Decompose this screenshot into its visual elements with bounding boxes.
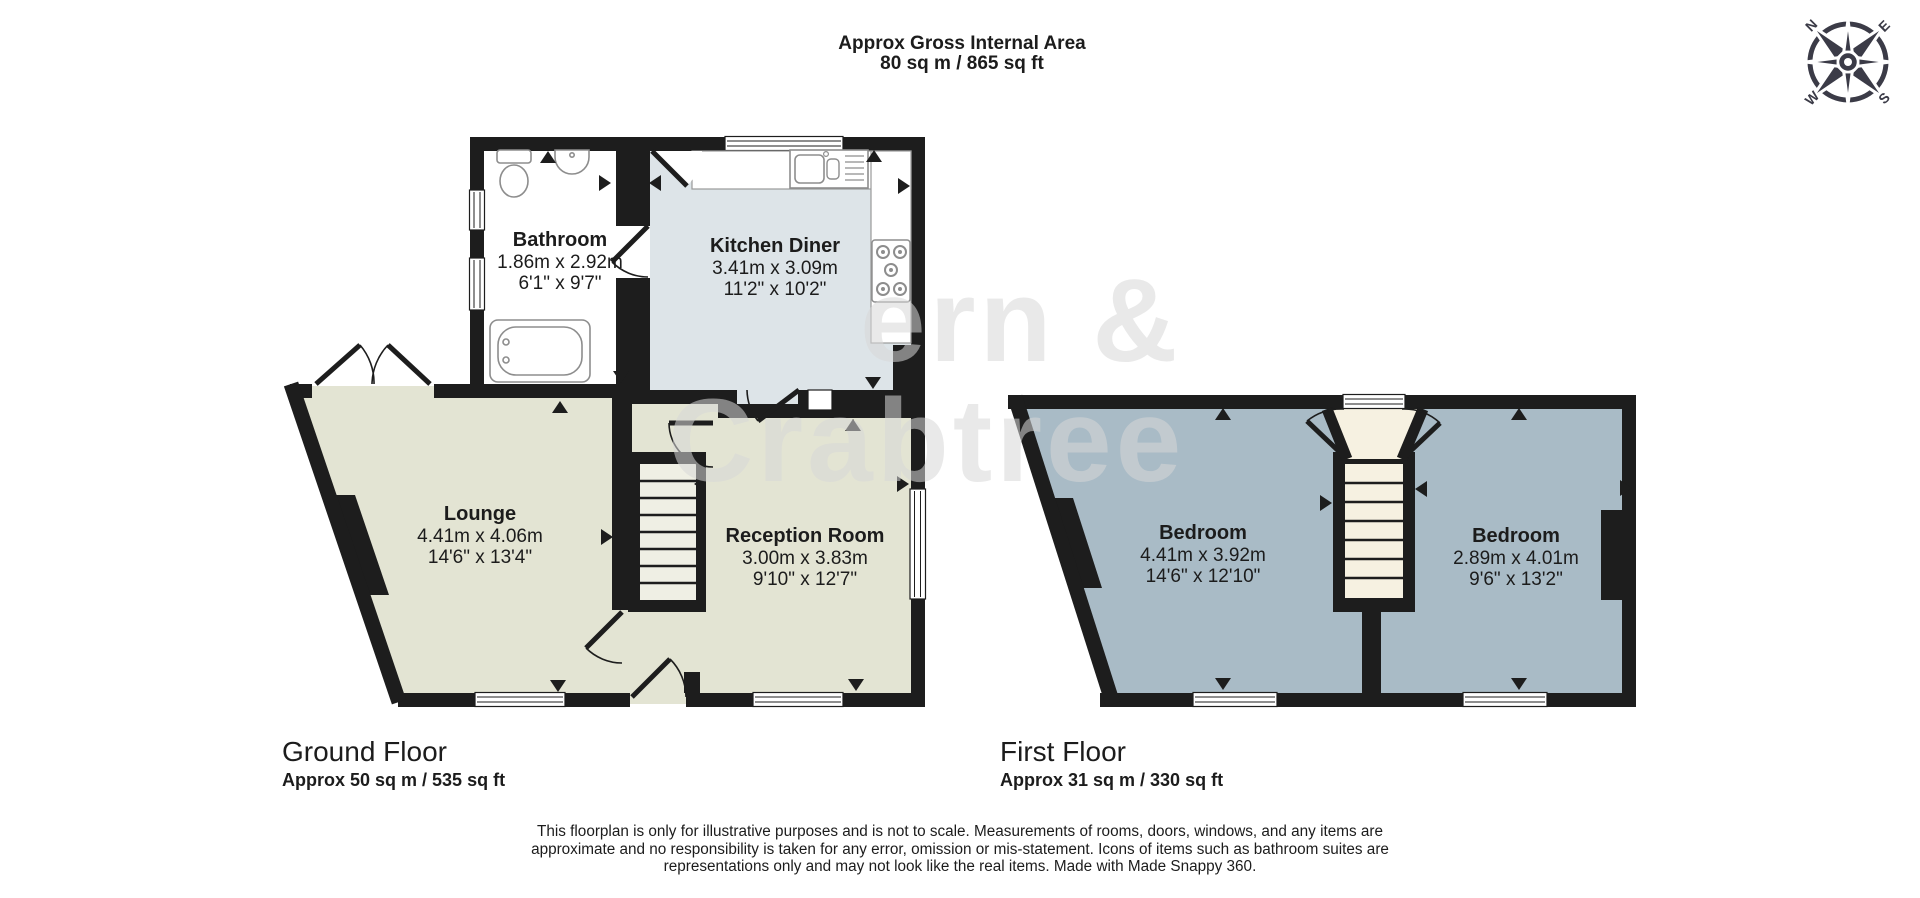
room-imperial: 6'1" x 9'7"	[470, 273, 650, 295]
hob-icon	[872, 240, 910, 302]
compass-s: S	[1875, 89, 1893, 107]
room-metric: 2.89m x 4.01m	[1408, 548, 1624, 570]
room-label-bedroom-2: Bedroom 2.89m x 4.01m 9'6" x 13'2"	[1408, 526, 1624, 591]
ground-floor-header: Ground Floor Approx 50 sq m / 535 sq ft	[282, 736, 702, 792]
kitchen-sink-icon	[790, 150, 868, 188]
room-metric: 3.00m x 3.83m	[697, 548, 913, 570]
title-line2: 80 sq m / 865 sq ft	[712, 54, 1212, 74]
room-imperial: 9'10" x 12'7"	[697, 569, 913, 591]
room-label-bathroom: Bathroom 1.86m x 2.92m 6'1" x 9'7"	[470, 230, 650, 295]
room-label-lounge: Lounge 4.41m x 4.06m 14'6" x 13'4"	[375, 504, 585, 569]
floor-name: First Floor	[1000, 736, 1420, 768]
room-metric: 4.41m x 3.92m	[1095, 545, 1311, 567]
floorplan-page: ern & Crabtree Approx Gross Internal Are…	[0, 0, 1920, 898]
room-imperial: 14'6" x 13'4"	[375, 547, 585, 569]
ground-staircase	[628, 452, 706, 612]
compass-icon: N E S W	[1788, 2, 1908, 122]
room-name: Lounge	[375, 504, 585, 526]
room-imperial: 14'6" x 12'10"	[1095, 566, 1311, 588]
room-label-kitchen-diner: Kitchen Diner 3.41m x 3.09m 11'2" x 10'2…	[685, 236, 865, 301]
first-floor-header: First Floor Approx 31 sq m / 330 sq ft	[1000, 736, 1420, 792]
room-name: Reception Room	[697, 526, 913, 548]
room-name: Bathroom	[470, 230, 650, 252]
room-label-reception-room: Reception Room 3.00m x 3.83m 9'10" x 12'…	[697, 526, 913, 591]
toilet-icon	[497, 150, 531, 197]
disclaimer-text: This floorplan is only for illustrative …	[500, 823, 1420, 876]
floor-area: Approx 50 sq m / 535 sq ft	[282, 768, 702, 792]
title-line1: Approx Gross Internal Area	[712, 34, 1212, 54]
ground-floor-plan	[290, 137, 926, 708]
room-metric: 1.86m x 2.92m	[470, 252, 650, 274]
room-name: Kitchen Diner	[685, 236, 865, 258]
room-metric: 4.41m x 4.06m	[375, 526, 585, 548]
bathtub-icon	[490, 320, 590, 382]
floor-area: Approx 31 sq m / 330 sq ft	[1000, 768, 1420, 792]
room-metric: 3.41m x 3.09m	[685, 258, 865, 280]
floor-name: Ground Floor	[282, 736, 702, 768]
room-name: Bedroom	[1408, 526, 1624, 548]
gross-internal-area-title: Approx Gross Internal Area 80 sq m / 865…	[712, 34, 1212, 74]
room-name: Bedroom	[1095, 523, 1311, 545]
room-label-bedroom-1: Bedroom 4.41m x 3.92m 14'6" x 12'10"	[1095, 523, 1311, 588]
room-imperial: 9'6" x 13'2"	[1408, 569, 1624, 591]
room-imperial: 11'2" x 10'2"	[685, 279, 865, 301]
